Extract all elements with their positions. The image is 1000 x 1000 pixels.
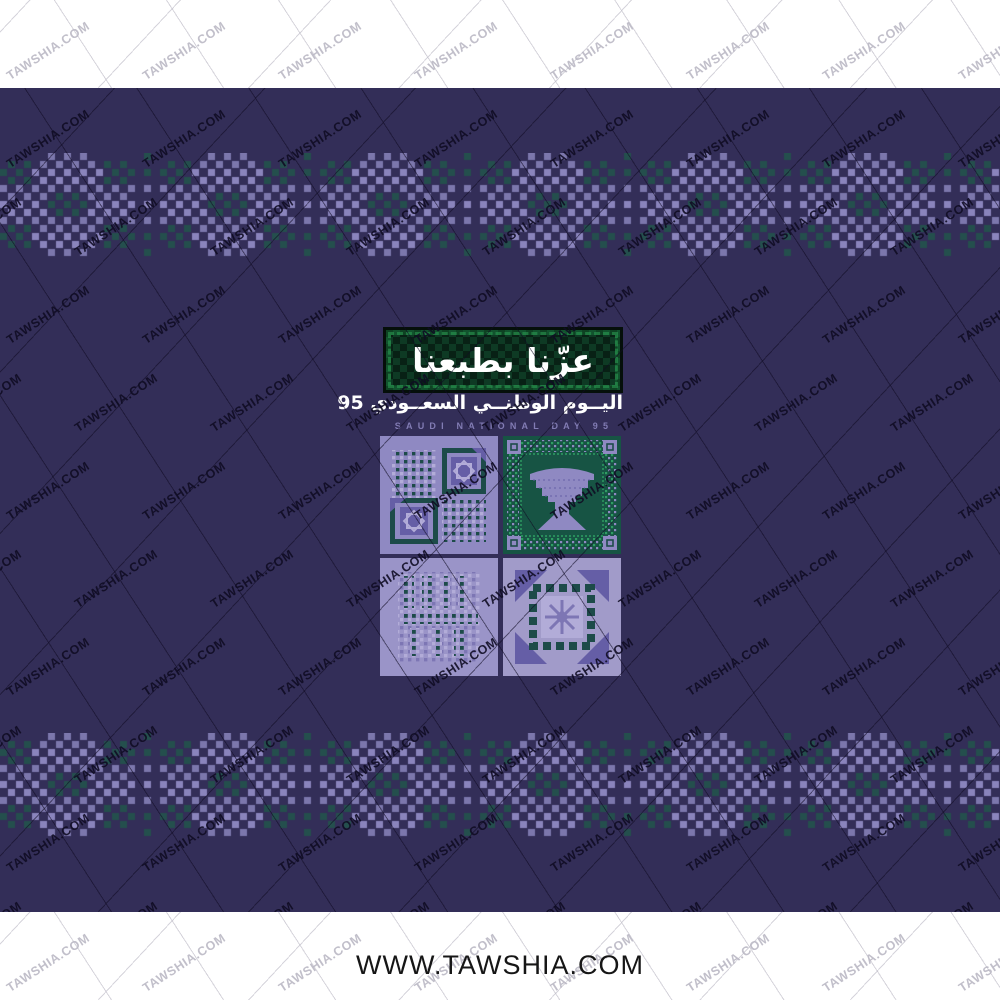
watermark-text: TAWSHIA.COM [684, 19, 772, 83]
watermark-text: TAWSHIA.COM [820, 19, 908, 83]
footer-website-url: WWW.TAWSHIA.COM [0, 950, 1000, 981]
saudi-national-day-title-arabic: اليــوم الوطنــي السعــودي 95 [383, 392, 623, 414]
tile-green-vase [503, 436, 621, 554]
tile-dot-grid [380, 558, 498, 676]
watermark-text: TAWSHIA.COM [276, 19, 364, 83]
watermark-text: TAWSHIA.COM [548, 19, 636, 83]
star-sawtooth-graphic [503, 558, 621, 676]
watermark-text: TAWSHIA.COM [4, 19, 92, 83]
watermark-text: TAWSHIA.COM [956, 19, 1000, 83]
watermark-text: TAWSHIA.COM [412, 19, 500, 83]
sadu-border-pattern-bottom [0, 733, 1000, 837]
green-vase-graphic [503, 436, 621, 554]
watermark-layer-top: TAWSHIA.COMTAWSHIA.COMTAWSHIA.COMTAWSHIA… [0, 0, 1000, 88]
watermark-text: TAWSHIA.COM [140, 19, 228, 83]
tile-dot-medallion [380, 436, 498, 554]
saudi-national-day-title-english: SAUDI NATIONAL DAY 95 [381, 421, 627, 431]
pattern-tile-grid [380, 436, 621, 676]
poster-artboard: عزّنا بطبعنا اليــوم الوطنــي السعــودي … [0, 88, 1000, 912]
tile-star-sawtooth [503, 558, 621, 676]
slogan-arabic: عزّنا بطبعنا [386, 330, 620, 390]
dot-grid-graphic [380, 558, 498, 676]
product-preview-image: عزّنا بطبعنا اليــوم الوطنــي السعــودي … [0, 0, 1000, 1000]
slogan-banner: عزّنا بطبعنا [383, 327, 623, 393]
sadu-border-pattern-top [0, 153, 1000, 257]
dot-medallion-graphic [380, 436, 498, 554]
